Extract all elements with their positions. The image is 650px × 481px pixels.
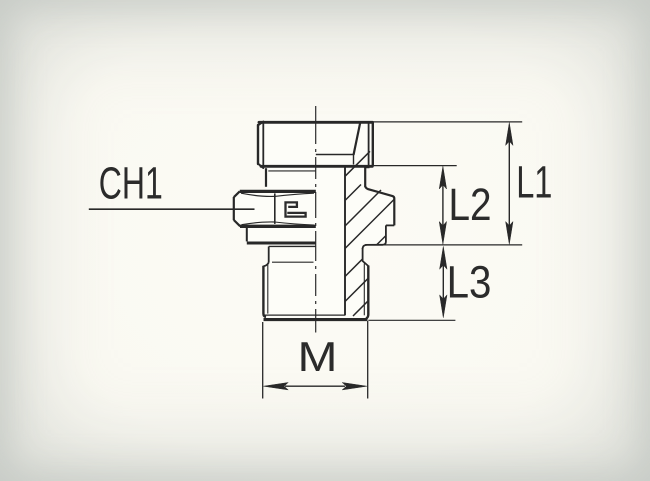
svg-text:L3: L3 [447, 257, 492, 308]
svg-text:M: M [298, 333, 338, 380]
svg-text:CH1: CH1 [99, 157, 163, 208]
svg-text:L1: L1 [516, 157, 552, 208]
svg-text:L2: L2 [449, 179, 492, 230]
